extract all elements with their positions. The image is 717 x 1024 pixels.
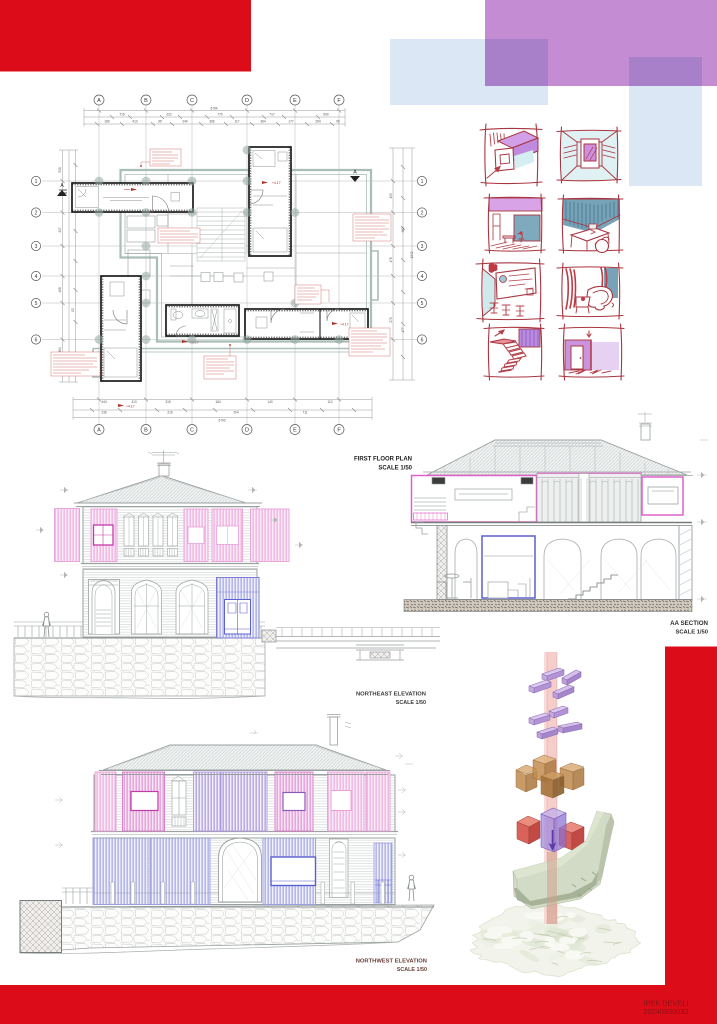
svg-text:462: 462 — [401, 227, 405, 233]
svg-text:95: 95 — [158, 120, 162, 124]
svg-text:219: 219 — [167, 411, 173, 415]
svg-text:3: 3 — [35, 244, 38, 250]
svg-text:6794: 6794 — [210, 106, 217, 110]
svg-text:A: A — [97, 98, 101, 104]
svg-text:AA SECTION: AA SECTION — [670, 620, 708, 627]
svg-text:+4.17: +4.17 — [126, 405, 135, 409]
svg-text:117: 117 — [234, 120, 239, 124]
svg-text:E: E — [293, 98, 297, 104]
svg-text:110: 110 — [327, 400, 332, 404]
svg-text:5: 5 — [35, 301, 38, 307]
svg-text:222: 222 — [166, 113, 172, 117]
svg-text:1: 1 — [421, 179, 424, 185]
svg-text:4: 4 — [35, 274, 38, 280]
svg-text:NORTHWEST ELEVATION: NORTHWEST ELEVATION — [356, 959, 427, 965]
svg-text:D: D — [245, 428, 249, 434]
svg-text:D: D — [245, 98, 249, 104]
svg-text:408: 408 — [58, 287, 62, 293]
svg-text:3: 3 — [421, 244, 424, 250]
svg-text:6: 6 — [421, 338, 424, 344]
svg-text:A: A — [97, 428, 101, 434]
svg-text:177: 177 — [401, 327, 405, 333]
svg-text:C: C — [190, 428, 194, 434]
svg-text:SCALE 1/50: SCALE 1/50 — [396, 700, 426, 706]
svg-text:SCALE 1/50: SCALE 1/50 — [675, 630, 708, 636]
svg-text:417: 417 — [58, 227, 62, 233]
svg-text:SCALE 1/50: SCALE 1/50 — [397, 967, 427, 973]
svg-text:510: 510 — [58, 167, 62, 173]
svg-text:6: 6 — [35, 338, 38, 344]
svg-text:NORTHEAST ELEVATION: NORTHEAST ELEVATION — [356, 692, 426, 698]
svg-text:B: B — [144, 428, 148, 434]
svg-text:444: 444 — [101, 400, 107, 404]
svg-text:717: 717 — [269, 113, 275, 117]
svg-text:590: 590 — [323, 113, 329, 117]
svg-text:193: 193 — [389, 193, 393, 199]
svg-text:204: 204 — [233, 411, 239, 415]
svg-text:413: 413 — [132, 120, 138, 124]
svg-text:2: 2 — [35, 211, 38, 217]
svg-text:240: 240 — [182, 120, 188, 124]
svg-text:E: E — [293, 428, 297, 434]
svg-text:366: 366 — [209, 120, 215, 124]
svg-text:177: 177 — [288, 120, 294, 124]
svg-text:6793: 6793 — [218, 418, 225, 422]
svg-text:96: 96 — [336, 120, 340, 124]
svg-text:315: 315 — [165, 400, 171, 404]
svg-text:4: 4 — [421, 274, 424, 280]
svg-text:1242: 1242 — [410, 251, 414, 258]
svg-text:+4.17: +4.17 — [340, 323, 349, 327]
svg-text:180: 180 — [104, 120, 110, 124]
svg-text:+4.17: +4.17 — [272, 181, 281, 185]
svg-text:364: 364 — [260, 120, 266, 124]
svg-text:770: 770 — [217, 113, 223, 117]
svg-text:140: 140 — [267, 400, 273, 404]
svg-text:176: 176 — [389, 257, 393, 263]
svg-text:5: 5 — [421, 301, 424, 307]
svg-text:B: B — [144, 98, 148, 104]
svg-text:270: 270 — [389, 317, 393, 323]
svg-text:711: 711 — [302, 411, 307, 415]
svg-text:FIRST FLOOR PLAN: FIRST FLOOR PLAN — [354, 457, 412, 463]
svg-text:715: 715 — [119, 113, 125, 117]
svg-text:20240930032: 20240930032 — [643, 1007, 688, 1016]
svg-text:264: 264 — [315, 120, 321, 124]
svg-text:02: 02 — [71, 308, 75, 312]
svg-text:236: 236 — [101, 411, 107, 415]
svg-text:1: 1 — [35, 179, 38, 185]
svg-text:184: 184 — [215, 400, 221, 404]
svg-text:2: 2 — [421, 211, 424, 217]
svg-text:C: C — [190, 98, 194, 104]
svg-text:SCALE 1/50: SCALE 1/50 — [378, 466, 412, 472]
